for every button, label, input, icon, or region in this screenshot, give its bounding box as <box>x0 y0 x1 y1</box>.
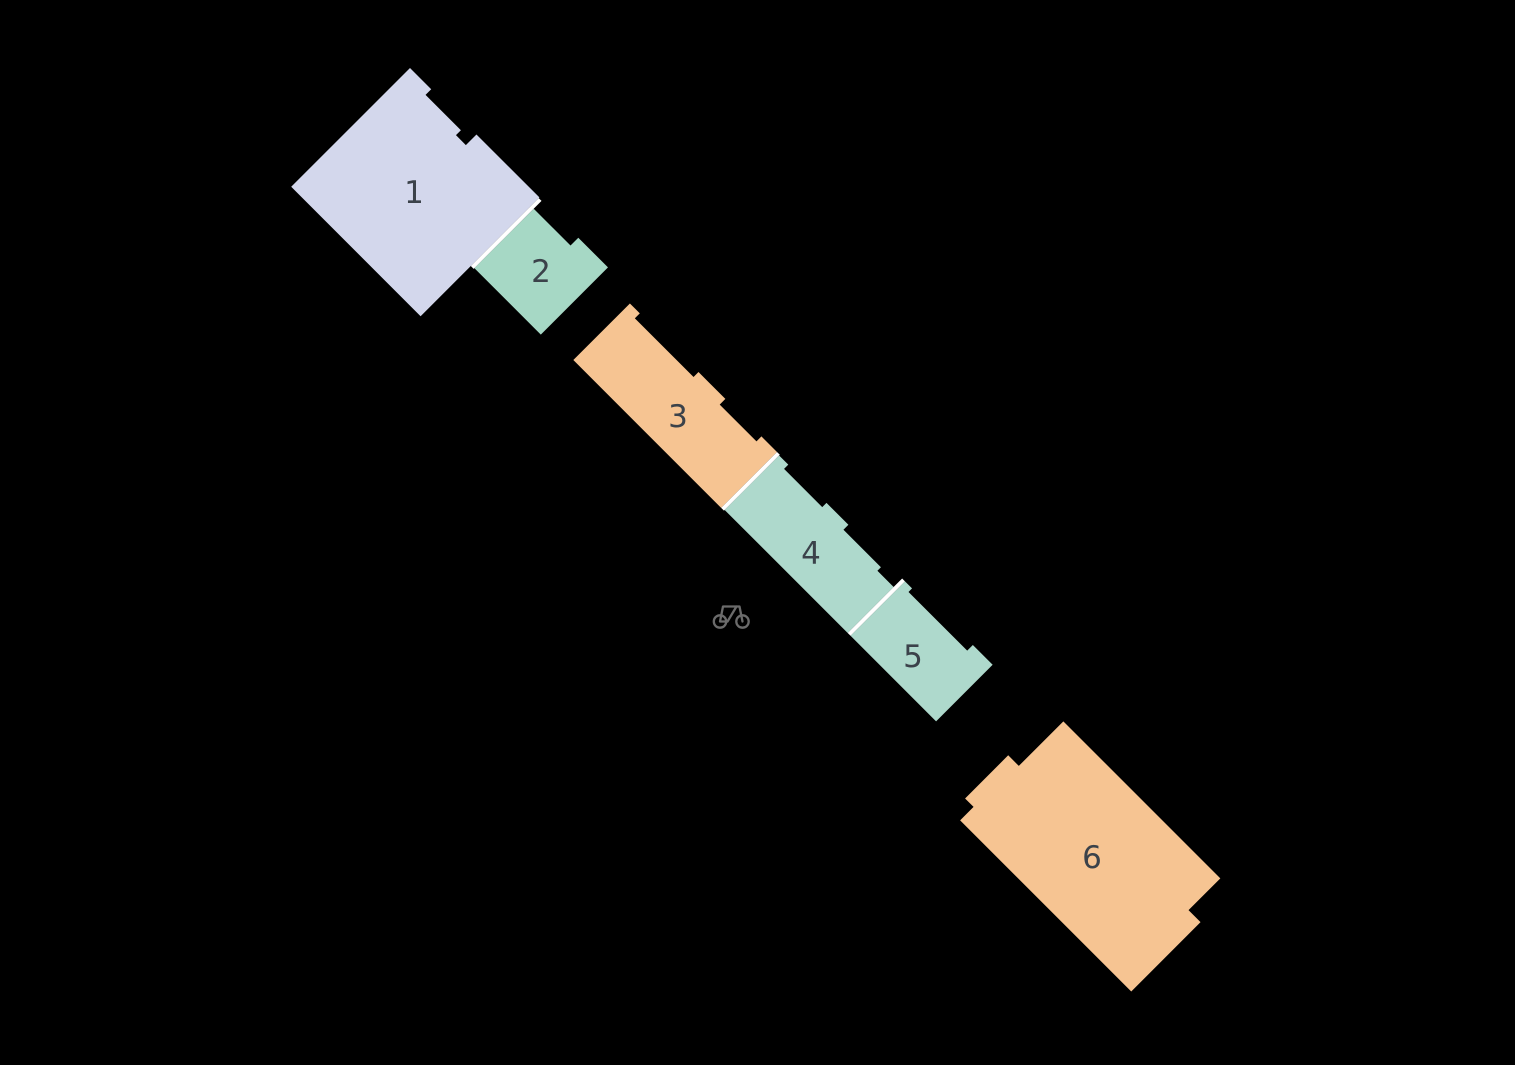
building-label-3: 3 <box>668 399 688 435</box>
plan-icons-group <box>714 607 749 628</box>
bicycle-icon <box>714 607 749 628</box>
building-label-4: 4 <box>801 536 821 572</box>
site-plan-canvas: 123456 <box>0 0 1515 1065</box>
building-label-6: 6 <box>1082 840 1102 876</box>
site-plan: 123456 <box>0 0 1515 1065</box>
building-label-1: 1 <box>404 175 424 211</box>
building-label-2: 2 <box>531 254 551 290</box>
building-label-5: 5 <box>903 639 923 675</box>
